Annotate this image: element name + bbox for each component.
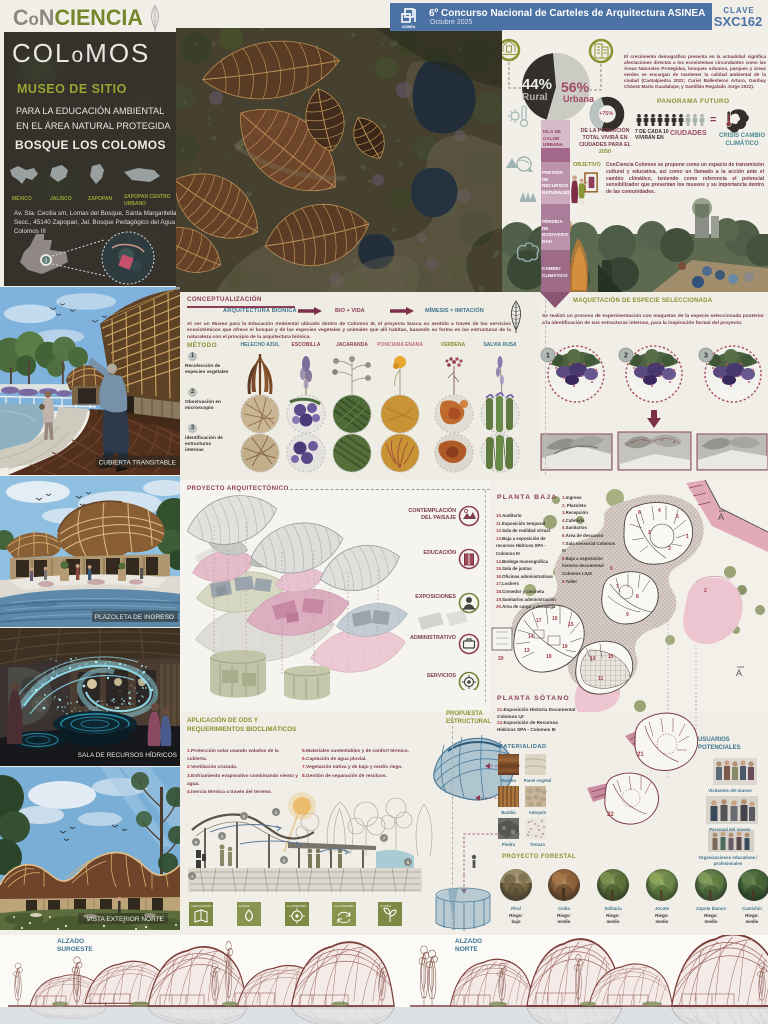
svg-text:VISTA EXTERIOR NORTE: VISTA EXTERIOR NORTE [87,916,165,923]
svg-text:3: 3 [45,259,48,265]
svg-text:14: 14 [528,634,534,640]
svg-text:3: 3 [668,546,671,552]
svg-text:1: 1 [546,353,550,360]
svg-text:2: 2 [648,530,651,536]
svg-text:2: 2 [704,588,707,594]
svg-text:ZAPOPAN: ZAPOPAN [88,196,112,202]
svg-text:JALISCO: JALISCO [50,196,72,202]
svg-text:11: 11 [598,676,604,682]
svg-text:17: 17 [536,618,542,624]
svg-text:ZAPOPAN CENTRO: ZAPOPAN CENTRO [124,194,171,200]
svg-text:CUBIERTA TRANSITABLE: CUBIERTA TRANSITABLE [99,460,177,467]
svg-text:6: 6 [638,510,641,516]
svg-text:5: 5 [676,514,679,520]
svg-text:1: 1 [686,534,689,540]
svg-text:19: 19 [562,644,568,650]
svg-text:13: 13 [524,648,530,654]
svg-text:22: 22 [607,812,614,818]
svg-text:15: 15 [568,622,574,628]
svg-text:ASINEA: ASINEA [402,25,416,29]
svg-text:3: 3 [704,353,708,360]
svg-text:9: 9 [626,612,629,618]
svg-text:2: 2 [624,353,628,360]
svg-text:11 CIUDADES: 11 CIUDADES [287,904,306,908]
svg-text:19: 19 [590,656,596,662]
svg-text:URBANO: URBANO [124,201,146,207]
svg-text:8: 8 [636,594,639,600]
svg-text:15 VIDA: 15 VIDA [380,904,391,908]
svg-text:18: 18 [546,654,552,660]
svg-text:SALA DE RECURSOS HÍDRICOS: SALA DE RECURSOS HÍDRICOS [78,750,178,759]
svg-text:12 CONSUMO: 12 CONSUMO [334,904,355,908]
svg-text:15: 15 [608,654,614,660]
svg-text:16: 16 [552,616,558,622]
svg-text:4 EDUCACIÓN: 4 EDUCACIÓN [191,903,212,908]
svg-text:4: 4 [658,508,661,514]
svg-text:21: 21 [637,752,644,758]
svg-text:A: A [736,668,742,678]
svg-text:MÉXICO: MÉXICO [12,194,32,202]
svg-text:A: A [718,512,724,522]
svg-text:PLAZOLETA DE INGRESO: PLAZOLETA DE INGRESO [95,614,174,621]
svg-text:20: 20 [498,656,504,662]
svg-text:6 AGUA: 6 AGUA [239,904,250,908]
